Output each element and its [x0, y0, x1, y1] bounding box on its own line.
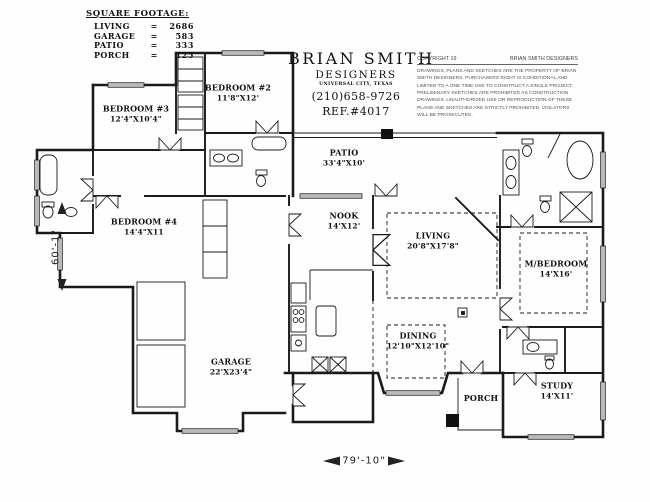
- room-name: PATIO: [323, 149, 365, 159]
- room-size: 14'X12': [328, 221, 361, 230]
- room-name: DINING: [387, 332, 450, 342]
- room-label-living: LIVING 20'8"X17'8": [407, 232, 459, 251]
- room-size: 33'4"X10': [323, 158, 365, 167]
- room-label-master-bedroom: M/BEDROOM 14'X16': [525, 260, 588, 279]
- copyright-year: COPYRIGHT 19: [417, 56, 456, 62]
- dim-arrow-up: [58, 202, 67, 214]
- room-name: BEDROOM #2: [205, 84, 271, 94]
- sqft-value: 125: [162, 51, 194, 61]
- room-size: 14'4"X11: [111, 227, 177, 236]
- copyright-body: DRAWINGS, PLANS AND SKETCHES ARE THE PRO…: [417, 68, 578, 120]
- room-name: M/BEDROOM: [525, 260, 588, 270]
- room-label-nook: NOOK 14'X12': [328, 212, 361, 231]
- room-label-bedroom3: BEDROOM #3 12'4"X10'4": [103, 105, 169, 124]
- room-size: 12'4"X10'4": [103, 114, 169, 123]
- door-symbols: [81, 121, 536, 406]
- room-label-study: STUDY 14'X11': [541, 382, 574, 401]
- room-name: BEDROOM #4: [111, 218, 177, 228]
- dimension-vertical-label: 60'-1": [51, 229, 62, 265]
- dashed-ceiling-lines: [373, 213, 587, 378]
- dim-arrow-left: [323, 457, 340, 466]
- room-size: 11'8"X12': [205, 93, 271, 102]
- plan-reference-number: REF.#4017: [288, 105, 424, 118]
- patio-edge: [293, 133, 497, 138]
- room-size: 12'10"X12'10": [387, 341, 450, 350]
- square-footage-table: SQUARE FOOTAGE: LIVING = 2686 GARAGE = 5…: [86, 9, 201, 60]
- sqft-label: PORCH: [86, 51, 146, 61]
- room-size: 22'X23'4": [210, 367, 252, 376]
- porch-column: [446, 414, 459, 427]
- room-label-garage: GARAGE 22'X23'4": [210, 358, 252, 377]
- patio-column: [381, 129, 393, 139]
- sqft-equals: =: [146, 51, 162, 61]
- room-label-porch: PORCH: [464, 394, 499, 404]
- copyright-header: COPYRIGHT 19 BRIAN SMITH DESIGNERS: [417, 56, 578, 65]
- copyright-owner: BRIAN SMITH DESIGNERS: [510, 56, 578, 62]
- firm-phone: (210)658-9726: [288, 90, 424, 103]
- dimension-horizontal-label: 79'-10": [342, 456, 385, 467]
- columns: [381, 129, 459, 427]
- room-label-bedroom2: BEDROOM #2 11'8"X12': [205, 84, 271, 103]
- dim-arrow-right: [388, 457, 405, 466]
- room-label-patio: PATIO 33'4"X10': [323, 149, 365, 168]
- room-name: PORCH: [464, 394, 499, 404]
- room-label-bedroom4: BEDROOM #4 14'4"X11: [111, 218, 177, 237]
- room-name: BEDROOM #3: [103, 105, 169, 115]
- firm-city: UNIVERSAL CITY, TEXAS: [288, 82, 424, 87]
- floor-plan-sheet: SQUARE FOOTAGE: LIVING = 2686 GARAGE = 5…: [0, 0, 650, 502]
- dimension-arrows: [58, 202, 406, 466]
- copyright-block: COPYRIGHT 19 BRIAN SMITH DESIGNERS DRAWI…: [417, 56, 578, 120]
- firm-name: BRIAN SMITH: [288, 49, 424, 68]
- square-footage-title: SQUARE FOOTAGE:: [86, 9, 201, 19]
- room-name: GARAGE: [210, 358, 252, 368]
- room-label-dining: DINING 12'10"X12'10": [387, 332, 450, 351]
- room-size: 14'X16': [525, 269, 588, 278]
- designer-title-block: BRIAN SMITH DESIGNERS UNIVERSAL CITY, TE…: [288, 49, 424, 118]
- room-name: LIVING: [407, 232, 459, 242]
- firm-subtitle: DESIGNERS: [288, 69, 424, 81]
- room-name: STUDY: [541, 382, 574, 392]
- sqft-row-porch: PORCH = 125: [86, 51, 201, 61]
- room-name: NOOK: [328, 212, 361, 222]
- room-size: 20'8"X17'8": [407, 241, 459, 250]
- room-size: 14'X11': [541, 391, 574, 400]
